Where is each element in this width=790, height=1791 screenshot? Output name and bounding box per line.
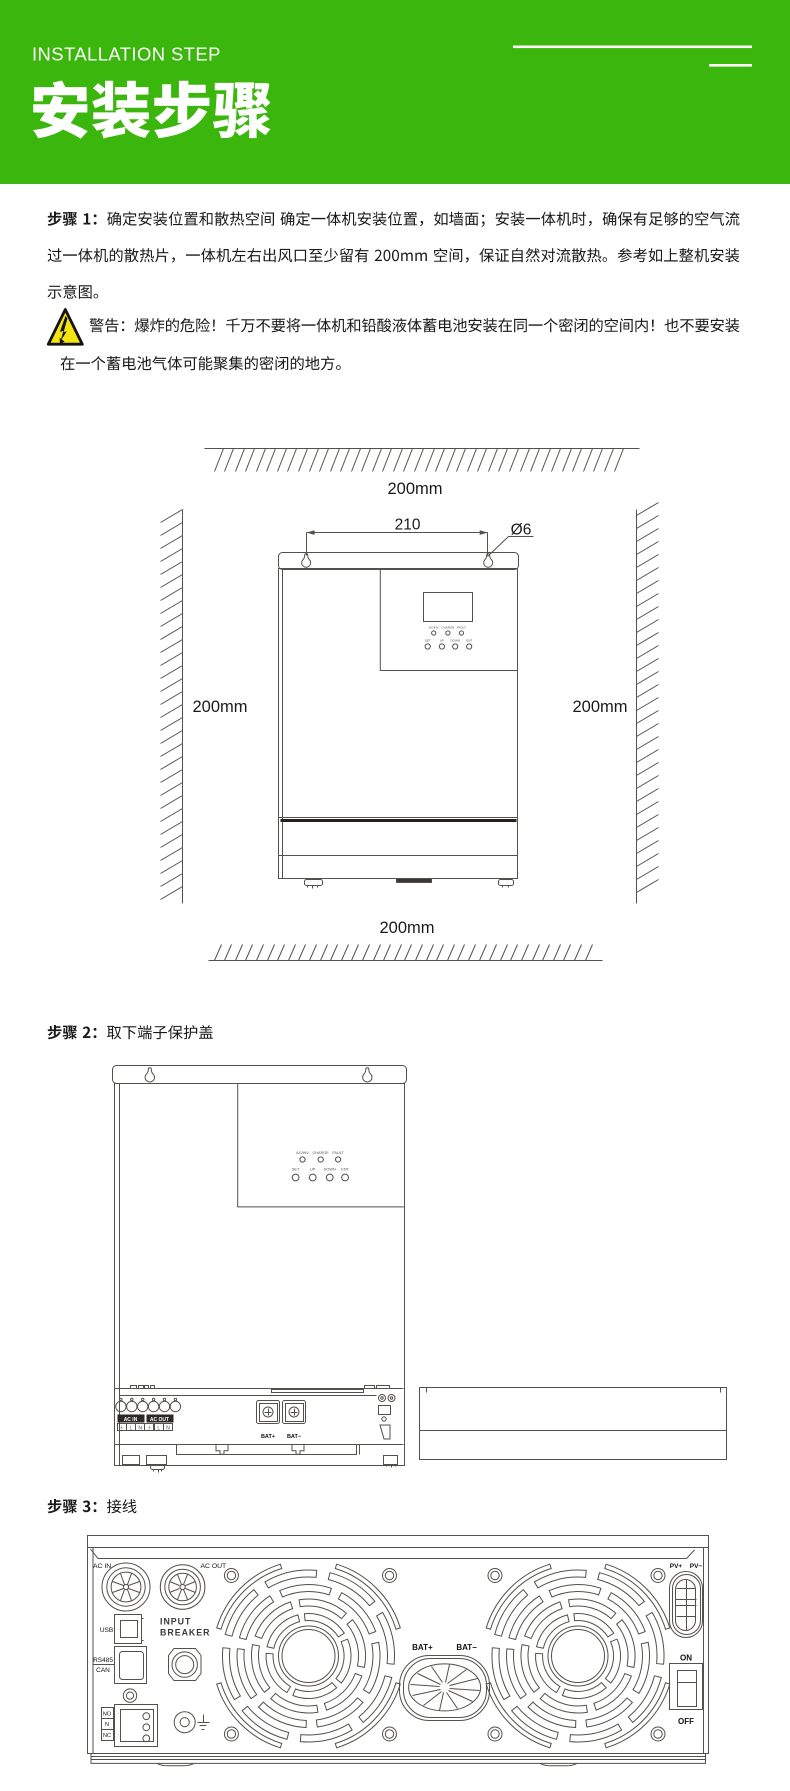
- svg-text:RS485: RS485: [93, 1657, 113, 1664]
- svg-text:DOWN: DOWN: [324, 1168, 336, 1172]
- svg-text:BAT+: BAT+: [412, 1643, 433, 1652]
- svg-text:UP: UP: [440, 639, 444, 643]
- svg-text:INPUT: INPUT: [160, 1617, 191, 1627]
- svg-text:BREAKER: BREAKER: [160, 1628, 211, 1638]
- svg-text:200mm: 200mm: [387, 480, 442, 498]
- svg-text:AC IN: AC IN: [93, 1563, 111, 1570]
- svg-text:NC: NC: [103, 1733, 111, 1739]
- svg-text:BAT+: BAT+: [261, 1434, 275, 1440]
- svg-text:PV−: PV−: [690, 1563, 703, 1570]
- svg-text:FAULT: FAULT: [457, 626, 466, 630]
- svg-text:BAT−: BAT−: [287, 1434, 301, 1440]
- svg-text:N: N: [166, 1426, 170, 1432]
- svg-text:PV+: PV+: [670, 1563, 683, 1570]
- svg-text:N: N: [138, 1426, 142, 1432]
- svg-text:200mm: 200mm: [379, 919, 434, 937]
- svg-text:AC/INV: AC/INV: [429, 626, 439, 630]
- svg-text:CAN: CAN: [96, 1667, 110, 1674]
- svg-text:DOWN: DOWN: [450, 639, 460, 643]
- svg-text:USB: USB: [100, 1627, 113, 1634]
- svg-text:AC OUT: AC OUT: [150, 1417, 169, 1423]
- svg-text:210: 210: [395, 517, 421, 534]
- svg-text:AC IN: AC IN: [124, 1417, 138, 1423]
- svg-text:Ø6: Ø6: [511, 522, 532, 539]
- svg-text:CHARGE: CHARGE: [441, 626, 454, 630]
- svg-text:AC/INV: AC/INV: [296, 1151, 309, 1155]
- svg-text:INSTALLATION STEP: INSTALLATION STEP: [32, 44, 221, 65]
- svg-text:200mm: 200mm: [572, 698, 627, 716]
- svg-text:UP: UP: [310, 1168, 316, 1172]
- svg-text:⏚: ⏚: [147, 1425, 152, 1432]
- svg-text:OFF: OFF: [678, 1717, 694, 1726]
- svg-text:FAULT: FAULT: [332, 1151, 344, 1155]
- svg-text:SET: SET: [425, 639, 431, 643]
- svg-text:BAT−: BAT−: [456, 1643, 477, 1652]
- svg-text:⏚: ⏚: [119, 1425, 124, 1432]
- svg-text:L: L: [157, 1426, 160, 1432]
- svg-text:SET: SET: [292, 1168, 300, 1172]
- svg-text:CHARGE: CHARGE: [313, 1151, 330, 1155]
- svg-text:ENT: ENT: [341, 1168, 349, 1172]
- svg-text:AC OUT: AC OUT: [201, 1563, 227, 1570]
- svg-text:N: N: [105, 1722, 109, 1728]
- svg-text:L: L: [130, 1426, 133, 1432]
- svg-text:ON: ON: [680, 1654, 692, 1663]
- svg-text:NO: NO: [103, 1712, 112, 1718]
- svg-text:ENT: ENT: [466, 639, 472, 643]
- svg-text:200mm: 200mm: [192, 698, 247, 716]
